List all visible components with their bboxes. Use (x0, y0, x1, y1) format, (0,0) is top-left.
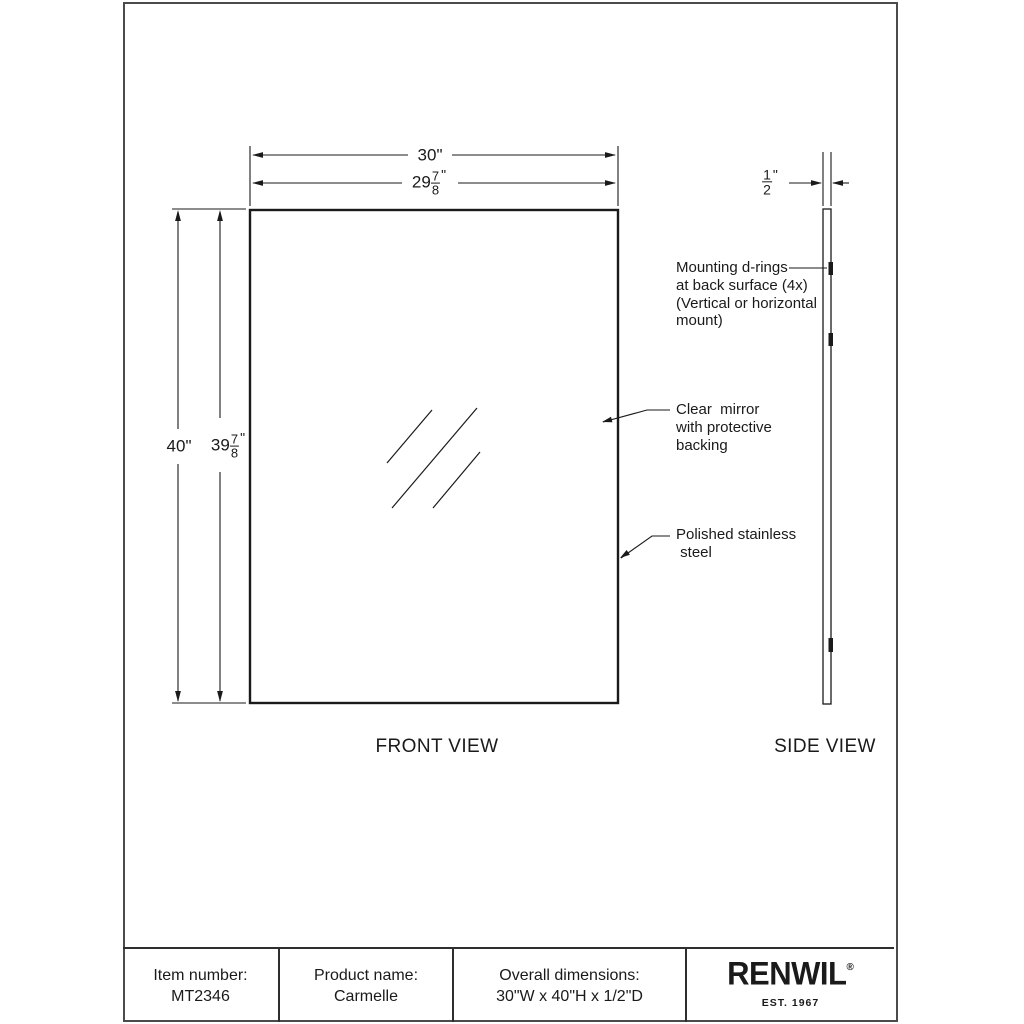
dim-unit: " (240, 430, 245, 446)
dim-unit: " (436, 146, 442, 165)
fraction-numerator: 7 (230, 432, 239, 446)
arrowhead (605, 180, 616, 186)
dim-text-height-actual: 3978" (208, 431, 248, 460)
item-number-value: MT2346 (171, 986, 230, 1007)
brand-tagline: EST. 1967 (762, 993, 819, 1014)
dim-text-width-actual: 2978" (409, 168, 449, 197)
fraction: 78 (431, 169, 440, 196)
brand-wordmark: RENWIL (727, 959, 846, 989)
dim-unit: " (773, 166, 778, 182)
arrowhead (605, 152, 616, 158)
side-view-label: SIDE VIEW (774, 736, 876, 758)
annotation-polished-steel: Polished stainless steel (676, 526, 796, 562)
dim-text-width-nominal: 30" (415, 147, 446, 164)
arrowhead (811, 180, 822, 186)
front-view-outline (250, 210, 618, 703)
title-block-dimensions-cell: Overall dimensions: 30"W x 40"H x 1/2"D (452, 949, 685, 1022)
drawing-linework (0, 0, 1024, 1024)
depth-extension-lines (823, 152, 831, 206)
registered-trademark-symbol: ® (846, 962, 853, 973)
arrowhead (252, 180, 263, 186)
fraction-numerator: 1 (762, 168, 772, 183)
product-name-value: Carmelle (334, 986, 398, 1007)
annotation-line: Clear mirror (676, 401, 772, 419)
title-block-brand-cell: RENWIL® EST. 1967 (685, 949, 894, 1022)
spec-sheet: 30" 2978" 40" 3978" 12" Mounting d-rings… (0, 0, 1024, 1024)
title-block-product-name-cell: Product name: Carmelle (278, 949, 452, 1022)
fraction-denominator: 8 (230, 446, 239, 459)
annotation-line: (Vertical or horizontal (676, 295, 817, 313)
annotation-mounting-d-rings: Mounting d-rings at back surface (4x) (V… (676, 259, 817, 330)
annotation-clear-mirror: Clear mirror with protective backing (676, 401, 772, 454)
overall-dimensions-value: 30"W x 40"H x 1/2"D (496, 986, 643, 1007)
title-block-item-number-cell: Item number: MT2346 (123, 949, 278, 1022)
fraction-denominator: 8 (431, 183, 440, 196)
fraction: 12 (762, 168, 772, 197)
leader-polished-steel (620, 536, 670, 558)
dim-value: 40 (167, 437, 186, 456)
arrowhead (832, 180, 843, 186)
brand-logo: RENWIL® (727, 957, 854, 990)
arrowhead (175, 691, 181, 702)
arrowhead (252, 152, 263, 158)
dim-text-height-nominal: 40" (164, 438, 195, 455)
annotation-line: mount) (676, 312, 817, 330)
annotation-line: at back surface (4x) (676, 277, 817, 295)
arrowhead (217, 691, 223, 702)
item-number-label: Item number: (153, 965, 247, 986)
dim-whole: 29 (412, 172, 431, 191)
dim-text-depth: 12" (759, 167, 781, 196)
product-name-label: Product name: (314, 965, 418, 986)
annotation-line: Mounting d-rings (676, 259, 817, 277)
title-block: Item number: MT2346 Product name: Carmel… (123, 947, 894, 1022)
arrowhead (175, 210, 181, 221)
fraction-denominator: 2 (762, 183, 772, 197)
dim-unit: " (441, 167, 446, 183)
fraction-numerator: 7 (431, 169, 440, 183)
annotation-line: Polished stainless (676, 526, 796, 544)
dim-unit: " (185, 437, 191, 456)
side-view-outline (823, 209, 831, 704)
overall-dimensions-label: Overall dimensions: (499, 965, 640, 986)
dim-whole: 39 (211, 435, 230, 454)
annotation-line: with protective (676, 419, 772, 437)
front-view-label: FRONT VIEW (376, 736, 499, 758)
dim-value: 30 (418, 146, 437, 165)
annotation-line: steel (676, 544, 796, 562)
fraction: 78 (230, 432, 239, 459)
arrowhead (217, 210, 223, 221)
annotation-line: backing (676, 437, 772, 455)
